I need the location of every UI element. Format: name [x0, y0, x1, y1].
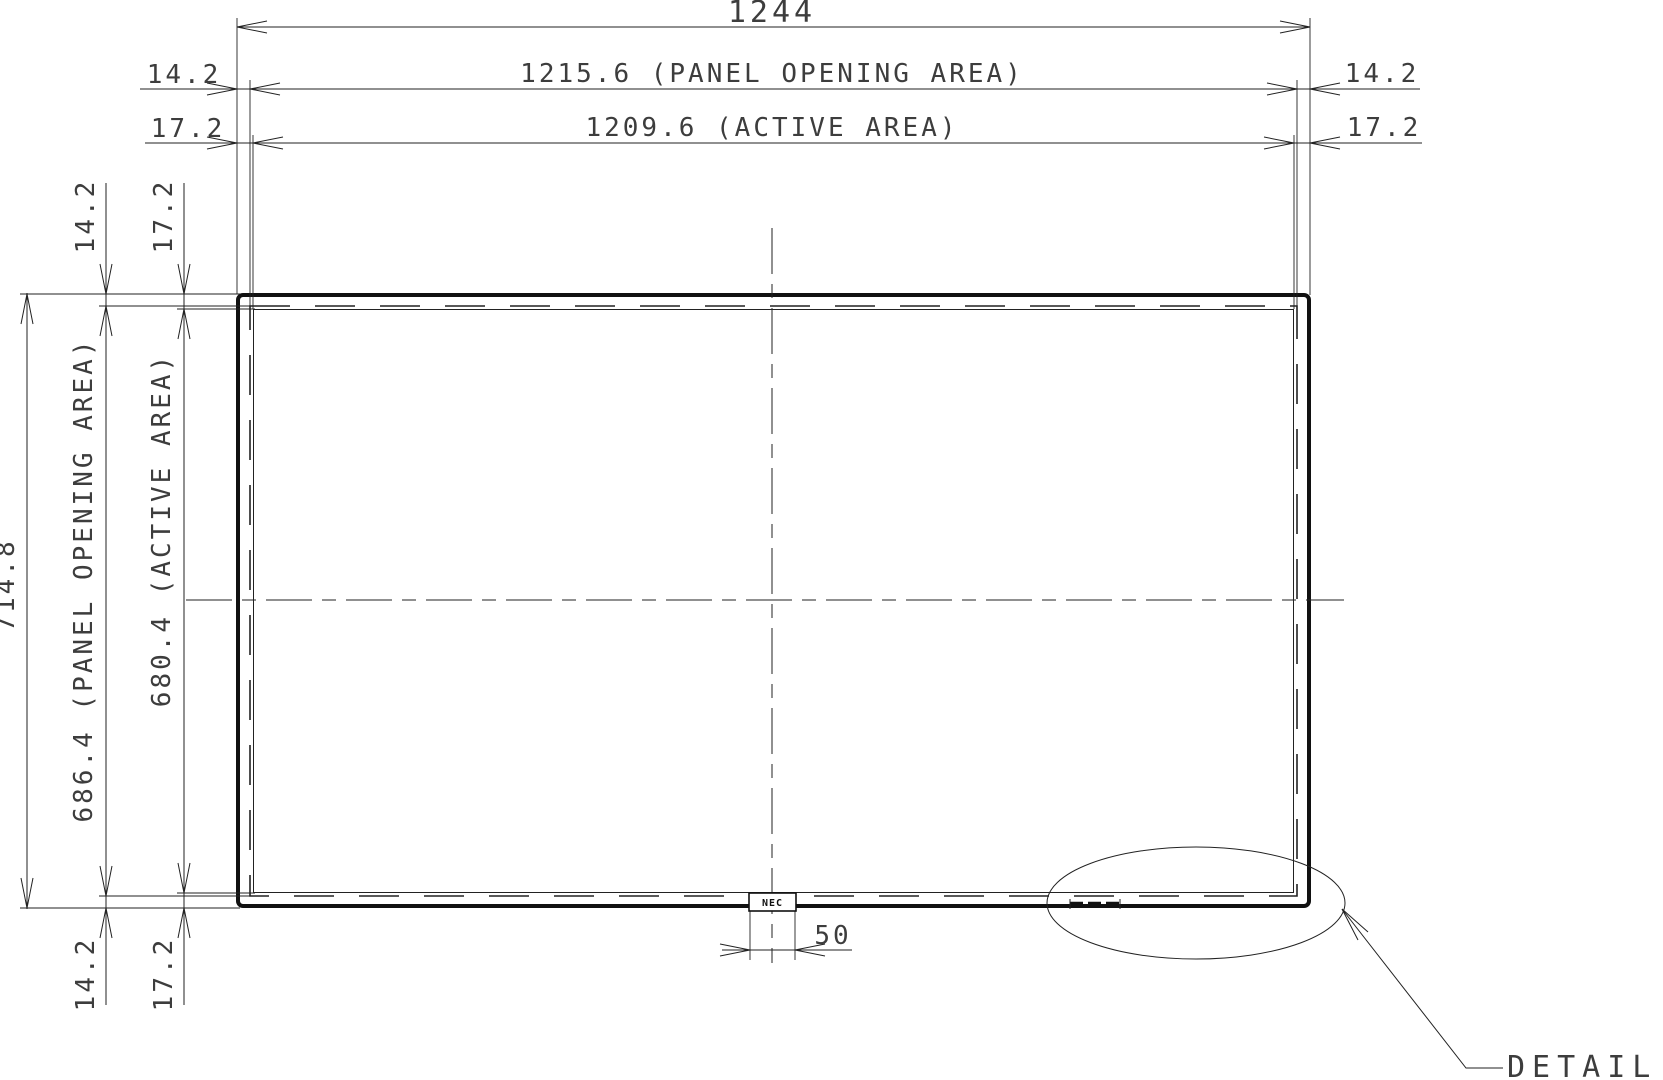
- panel-dimension-drawing: NEC 1244 1215.6 (PANEL OPENING AREA) 120…: [0, 0, 1663, 1080]
- dim-opening-margin-left-bottom: 14.2: [71, 937, 101, 1012]
- dim-opening-margin-top-left: 14.2: [147, 60, 222, 90]
- dim-opening-margin-top-right: 14.2: [1345, 59, 1420, 89]
- dim-active-margin-left-bottom: 17.2: [149, 937, 179, 1012]
- extension-lines: [20, 18, 1310, 960]
- panel-opening-area-outline: [250, 306, 1297, 896]
- detail-a-label: DETAIL A: [1507, 1050, 1663, 1080]
- active-area-outline: [254, 310, 1294, 893]
- dim-active-width: 1209.6 (ACTIVE AREA): [585, 113, 958, 143]
- dim-opening-height: 686.4 (PANEL OPENING AREA): [69, 338, 99, 823]
- detail-a-leader: [1342, 909, 1503, 1068]
- logo-text: NEC: [762, 898, 783, 909]
- dimension-arrowheads: [21, 21, 1340, 956]
- dim-total-height: 714.8: [0, 538, 21, 631]
- dim-active-margin-left-top: 17.2: [149, 179, 179, 254]
- dim-active-height: 680.4 (ACTIVE AREA): [147, 353, 177, 707]
- dim-total-width: 1244: [728, 0, 816, 30]
- dim-active-margin-top-left: 17.2: [151, 114, 226, 144]
- dim-logo-width: 50: [814, 921, 851, 951]
- dim-opening-width: 1215.6 (PANEL OPENING AREA): [520, 59, 1024, 89]
- dim-opening-margin-left-top: 14.2: [71, 179, 101, 254]
- drawing-canvas: NEC 1244 1215.6 (PANEL OPENING AREA) 120…: [0, 0, 1663, 1080]
- dim-active-margin-top-right: 17.2: [1347, 113, 1422, 143]
- logo-plate: NEC: [749, 893, 796, 911]
